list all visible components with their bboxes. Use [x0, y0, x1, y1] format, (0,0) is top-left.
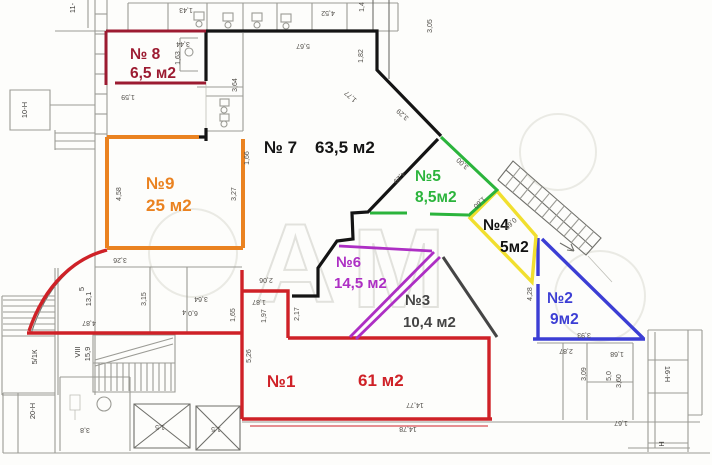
room-1-area: 61 м2 [358, 371, 404, 390]
room-7-area: 63,5 м2 [315, 138, 375, 157]
dim-text: 1,66 [244, 151, 251, 165]
dim-text: 3,27 [231, 187, 238, 201]
unit-20n-room [3, 393, 55, 453]
dim-text: 14,78 [399, 425, 417, 432]
room-1-label: №1 [267, 372, 295, 391]
dim-text: 2,06 [259, 276, 273, 283]
dim-text: 5,67 [296, 42, 310, 49]
dim-text: 4,58 [116, 187, 123, 201]
room-5-area: 8,5м2 [415, 189, 457, 206]
dim-text: 1,43 [179, 6, 193, 13]
dim-text: 2,87 [559, 347, 573, 354]
dim-text: 3,60 [616, 374, 623, 388]
staircase-arrow [560, 243, 574, 251]
dim-text: 5,26 [246, 349, 253, 363]
inner-rooms-middle [58, 267, 242, 395]
plan-line [535, 193, 550, 211]
room-9-area: 25 м2 [146, 196, 192, 215]
dim-text: 3,93 [577, 331, 591, 338]
dim-text: 1,82 [358, 49, 365, 63]
watermark-circle [520, 114, 596, 190]
dim-text: 13,1 [84, 292, 93, 307]
wc-sink [70, 395, 80, 420]
dim-text: 3,15 [141, 292, 148, 306]
dim-text: 14,77 [406, 401, 424, 408]
stair-left-steps [3, 300, 55, 330]
plan-line [549, 206, 564, 224]
room-8-area: 6,5 м2 [130, 65, 176, 82]
wc-basin [97, 397, 111, 411]
room-2-area: 9м2 [550, 311, 579, 328]
dim-text: 1,97 [261, 309, 268, 323]
dim-text: Н [657, 441, 666, 446]
dim-text: 5 [77, 287, 86, 291]
floor-plan-page: АМ [0, 0, 712, 465]
plan-line [513, 174, 528, 193]
dim-text: 1,4 [359, 2, 366, 12]
dim-text: 1,59 [121, 93, 135, 100]
room-8-label: № 8 [130, 46, 161, 63]
plan-line [527, 187, 542, 205]
dim-text: 4 [182, 308, 186, 315]
dim-text: 6,0 [188, 309, 198, 316]
dim-text: 4,52 [321, 9, 335, 16]
dim-text: 1,67 [614, 419, 628, 426]
watermark-letter: М [352, 206, 445, 331]
dim-text: 20-Н [28, 403, 37, 419]
room-3-label: №3 [405, 292, 430, 309]
dim-text: 3,64 [194, 295, 208, 302]
dim-text: 4,87 [82, 319, 96, 326]
room-9-outline [107, 137, 243, 248]
corridor-16n [628, 330, 702, 452]
stair-landing-line [588, 256, 612, 282]
south-rooms [242, 343, 700, 422]
dim-text: 1,60 [472, 195, 487, 210]
room-6-area: 14,5 м2 [334, 275, 387, 292]
watermark-circle [149, 209, 237, 297]
dim-text: VIII [73, 346, 82, 357]
plan-line [542, 200, 557, 218]
dim-text: 5,0 [606, 371, 613, 381]
dim-text: 1,63 [175, 51, 182, 65]
dim-text: 1,65 [230, 308, 237, 322]
plan-line [505, 167, 520, 186]
dim-text: 3,29 [396, 107, 411, 121]
dim-text: 1,5 [211, 425, 221, 432]
unit-10n-room [10, 90, 95, 150]
floor-plan: АМ [0, 0, 712, 465]
dim-text: 3,09 [581, 367, 588, 381]
dim-text: 3,26 [113, 256, 127, 263]
room-6-label: №6 [336, 254, 361, 271]
room-7-label: № 7 [264, 138, 297, 157]
dim-text: 5/1К [30, 349, 39, 364]
room-2-label: №2 [547, 290, 573, 307]
dim-text: 1,77 [344, 89, 359, 103]
dim-text: 3,64 [232, 78, 239, 92]
dim-text: 15,9 [83, 347, 92, 362]
dim-text: 1,5 [155, 423, 165, 430]
plan-line [520, 180, 535, 199]
dim-text: 4,29 [392, 170, 407, 185]
dim-text: 3,8 [80, 426, 90, 433]
room-3-area: 10,4 м2 [403, 314, 456, 331]
dim-text: 3,05 [427, 19, 434, 33]
dim-text: 3,44 [176, 40, 190, 47]
dim-text: 16-Н [663, 366, 672, 382]
room-4-area: 5м2 [500, 239, 529, 256]
dim-text: 2,17 [294, 307, 301, 321]
dim-text: 4,28 [527, 287, 534, 301]
room-5-label: №5 [415, 168, 441, 185]
room-outlines [27, 31, 645, 426]
dim-text: 1,87 [252, 298, 266, 305]
dim-text: 1,68 [610, 350, 624, 357]
dim-text: 11- [68, 2, 77, 13]
dim-text: 10-Н [20, 102, 29, 118]
room-9-label: №9 [146, 174, 174, 193]
